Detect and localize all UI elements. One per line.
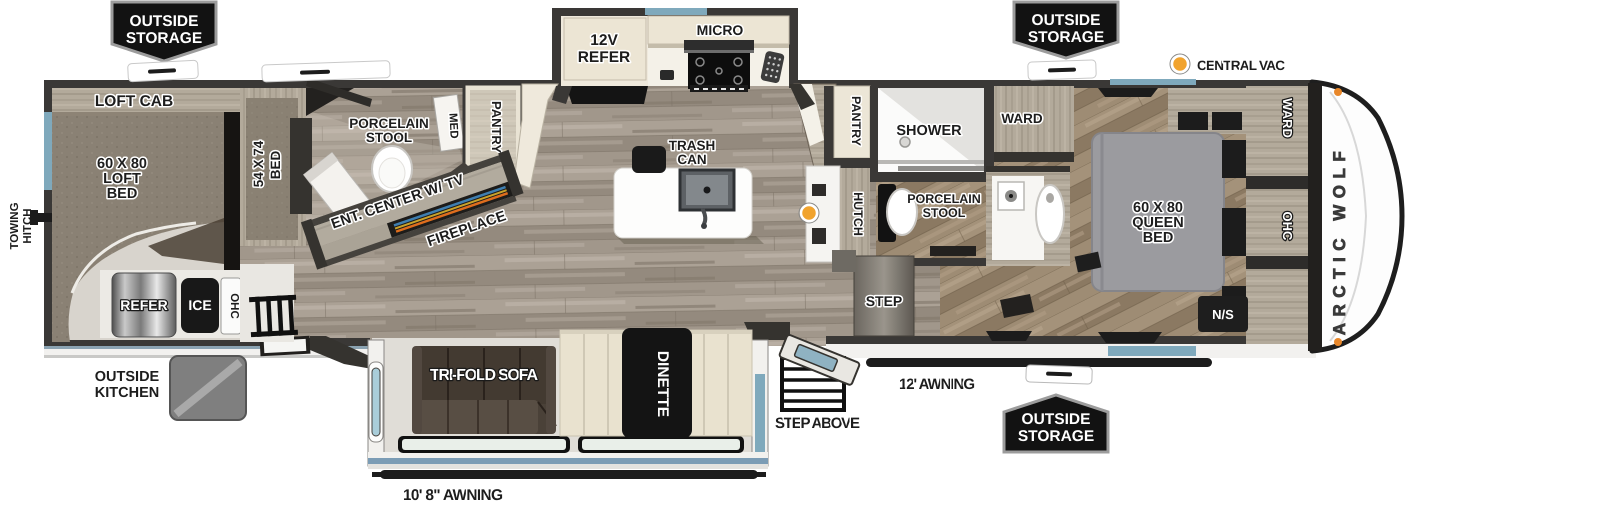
svg-text:REFER: REFER — [120, 297, 167, 313]
svg-text:HUTCH: HUTCH — [851, 192, 865, 236]
svg-text:STOOL: STOOL — [366, 130, 412, 145]
svg-text:OUTSIDE: OUTSIDE — [95, 369, 160, 385]
svg-text:N/S: N/S — [1212, 307, 1234, 322]
svg-text:BED: BED — [268, 151, 283, 180]
svg-text:WARD: WARD — [1001, 111, 1042, 126]
svg-text:TRASH: TRASH — [669, 138, 716, 153]
svg-text:STORAGE: STORAGE — [1018, 428, 1094, 445]
svg-text:BED: BED — [107, 186, 138, 202]
svg-text:OUTSIDE: OUTSIDE — [130, 13, 199, 30]
svg-text:LOFT: LOFT — [103, 171, 141, 187]
svg-text:STORAGE: STORAGE — [1028, 29, 1104, 46]
svg-text:BED: BED — [1143, 230, 1174, 246]
svg-text:SHOWER: SHOWER — [896, 123, 962, 139]
svg-text:OUTSIDE: OUTSIDE — [1032, 12, 1101, 29]
svg-text:OHC: OHC — [1280, 212, 1295, 242]
svg-text:CAN: CAN — [677, 152, 706, 167]
svg-text:STOOL: STOOL — [923, 206, 966, 220]
svg-text:10' 8" AWNING: 10' 8" AWNING — [403, 487, 503, 504]
svg-text:CENTRAL VAC: CENTRAL VAC — [1197, 58, 1285, 73]
svg-text:54 X 74: 54 X 74 — [251, 140, 266, 187]
svg-text:QUEEN: QUEEN — [1132, 215, 1184, 231]
svg-text:12' AWNING: 12' AWNING — [899, 376, 975, 393]
svg-text:STORAGE: STORAGE — [126, 30, 202, 47]
svg-text:60 X 80: 60 X 80 — [1133, 200, 1183, 216]
svg-text:ICE: ICE — [188, 297, 211, 313]
svg-text:60 X 80: 60 X 80 — [97, 156, 147, 172]
svg-text:MED: MED — [446, 113, 459, 139]
svg-text:OUTSIDE: OUTSIDE — [1022, 411, 1091, 428]
svg-text:TRI-FOLD SOFA: TRI-FOLD SOFA — [430, 367, 538, 384]
svg-text:MICRO: MICRO — [697, 22, 744, 38]
svg-text:DINETTE: DINETTE — [654, 351, 671, 417]
svg-text:STEP: STEP — [866, 293, 903, 309]
svg-text:OHC: OHC — [228, 293, 240, 319]
svg-text:KITCHEN: KITCHEN — [95, 385, 159, 401]
svg-text:REFER: REFER — [578, 49, 631, 66]
svg-text:PANTRY: PANTRY — [849, 96, 863, 147]
svg-text:PORCELAIN: PORCELAIN — [349, 116, 429, 131]
svg-text:12V: 12V — [590, 32, 618, 49]
svg-text:TOWING: TOWING — [9, 202, 21, 249]
svg-text:PANTRY: PANTRY — [489, 101, 504, 153]
svg-text:STEP ABOVE: STEP ABOVE — [775, 415, 860, 432]
svg-text:WARD: WARD — [1280, 98, 1295, 138]
svg-text:ARCTIC WOLF: ARCTIC WOLF — [1330, 145, 1349, 335]
svg-text:PORCELAIN: PORCELAIN — [907, 192, 981, 206]
svg-text:LOFT CAB: LOFT CAB — [95, 93, 173, 110]
